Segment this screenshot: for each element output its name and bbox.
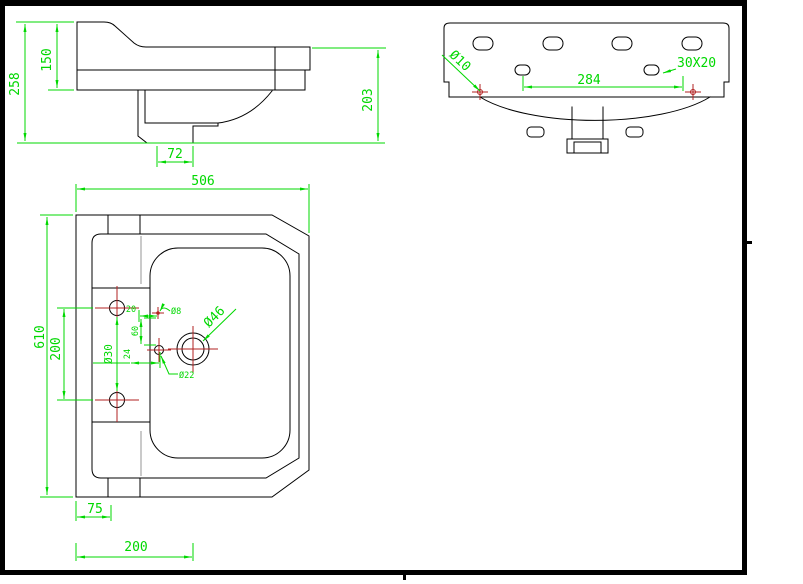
- overflow-crosshair: [147, 338, 171, 362]
- dim-ledge-offset-label: 75: [87, 502, 103, 517]
- side-view-outline: [77, 22, 310, 143]
- dim-front-height-label: 203: [361, 88, 376, 111]
- label-tap-hole-dia: Ø30: [102, 317, 117, 391]
- marker-cross: [472, 84, 488, 100]
- back-view: 284 Ø10 30X20: [442, 23, 729, 153]
- dim-overall-height-label: 258: [8, 72, 23, 95]
- dim-trap-width-label: 72: [167, 147, 183, 162]
- side-view-dimensions: 258 150 203 72: [8, 22, 386, 167]
- dim-offset-c-label: 24: [123, 349, 133, 359]
- frame-right-tick: [742, 241, 752, 244]
- mounting-slot-4: [682, 37, 702, 50]
- mounting-slot-3: [612, 37, 632, 50]
- leader-line: [160, 308, 170, 311]
- leader-line: [161, 356, 178, 374]
- dim-waste-offset: 200: [76, 540, 193, 561]
- tap-hole-dia-label: Ø30: [102, 344, 115, 364]
- plan-view-dimensions: 506 610 200 Ø30 Ø46: [33, 174, 309, 561]
- slot-size-label: 30X20: [677, 56, 716, 71]
- bowl-foot-left: [527, 127, 544, 137]
- small-hole-dia-label: Ø8: [171, 306, 181, 317]
- side-trap-outline: [138, 90, 193, 143]
- marker-cross: [685, 84, 701, 100]
- dim-back-height-label: 150: [40, 48, 55, 71]
- frame-right-edge: [742, 0, 747, 575]
- dim-back-height: 150: [40, 24, 57, 88]
- bowl-bottom-arc: [480, 97, 710, 120]
- dim-depth-label: 610: [33, 325, 48, 348]
- small-slot-right: [644, 65, 659, 75]
- technical-drawing-canvas: 258 150 203 72: [0, 0, 803, 584]
- label-slot-size: 30X20: [663, 56, 716, 73]
- dim-trap-width: 72: [157, 146, 193, 167]
- side-bowl-underside-arc: [218, 91, 272, 123]
- frame-bottom-edge: [0, 570, 747, 575]
- fixing-hole-marker-left: [472, 84, 488, 100]
- dim-ledge-offset: 75: [76, 501, 111, 521]
- side-trap-shelf: [145, 90, 218, 126]
- dim-fixing-hole-spacing: 284: [523, 73, 683, 91]
- dim-tap-hole-spacing: 200: [49, 308, 93, 400]
- fixing-hole-marker-right: [685, 84, 701, 100]
- back-view-dimensions: 284 Ø10 30X20: [442, 48, 716, 91]
- frame-bottom-tick: [403, 570, 406, 580]
- plan-view: 506 610 200 Ø30 Ø46: [33, 174, 309, 561]
- dim-width-label: 506: [191, 174, 214, 189]
- dim-front-height: 203: [361, 50, 378, 141]
- dim-overall-height: 258: [8, 24, 25, 141]
- dim-offset-b: 60: [131, 318, 156, 345]
- label-small-hole-dia: Ø8: [160, 306, 181, 317]
- dim-offset-a-label: 20: [126, 305, 136, 315]
- back-view-outline: [444, 23, 729, 153]
- dim-waste-offset-label: 200: [124, 540, 147, 555]
- overflow-dia-label: Ø22: [179, 370, 194, 381]
- mounting-slot-2: [543, 37, 563, 50]
- bowl-foot-right: [626, 127, 643, 137]
- side-view: 258 150 203 72: [8, 22, 386, 167]
- overflow-hole: [147, 338, 171, 362]
- dim-offset-b-label: 60: [131, 326, 141, 336]
- fixing-hole-dia-label: Ø10: [446, 48, 473, 75]
- small-slot-left: [515, 65, 530, 75]
- basin-bowl-outline: [150, 248, 290, 458]
- mounting-slot-1: [473, 37, 493, 50]
- frame-left-edge: [0, 0, 5, 575]
- frame-top-edge: [0, 0, 747, 6]
- waste-dia-label: Ø46: [201, 304, 228, 331]
- leader-line: [663, 69, 676, 73]
- drain-flange-inner: [574, 142, 601, 153]
- dim-tap-hole-spacing-label: 200: [49, 337, 64, 360]
- dim-fixing-hole-spacing-label: 284: [577, 73, 601, 88]
- side-profile-top: [77, 22, 310, 47]
- label-fixing-hole-dia: Ø10: [442, 48, 480, 91]
- label-waste-dia: Ø46: [201, 304, 236, 341]
- dim-width: 506: [76, 174, 309, 233]
- drain-flange-outer: [567, 139, 608, 153]
